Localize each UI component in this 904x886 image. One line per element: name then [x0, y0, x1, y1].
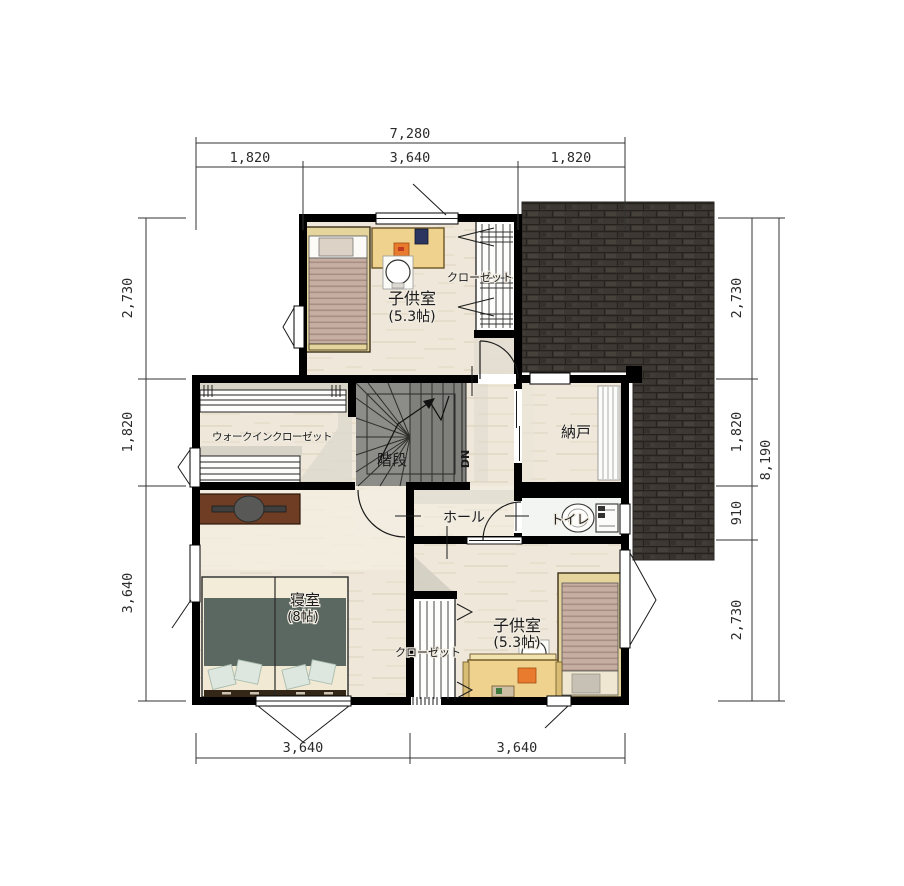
- window-icon: [620, 550, 630, 648]
- dresser-icon: [198, 494, 300, 524]
- label-bedroom: 寝室: [290, 591, 320, 609]
- window-icon: [620, 504, 630, 534]
- window-icon: [547, 696, 571, 706]
- floor-plan-page: 子供室 (5.3帖) クローゼット ウォークインクローゼット 階段 DN 納戸 …: [0, 0, 904, 886]
- label-walk-in-closet: ウォークインクローゼット: [212, 431, 332, 443]
- window-icon: [294, 306, 304, 348]
- door-icon: [478, 374, 516, 384]
- dim-left-seg-2: 1,820: [120, 412, 136, 453]
- window-icon: [530, 373, 570, 384]
- label-child-room-bottom: 子供室: [493, 616, 541, 635]
- dim-right-seg-4: 2,730: [729, 600, 745, 641]
- label-stairs: 階段: [377, 451, 407, 469]
- closet-rack-top-icon: [198, 383, 348, 412]
- bed-icon-child-bottom: [558, 573, 622, 697]
- bed-icon-bedroom: [202, 577, 348, 697]
- window-icon: [190, 545, 200, 602]
- dim-left-seg-3: 3,640: [120, 573, 136, 614]
- dim-right-seg-1: 2,730: [729, 278, 745, 319]
- label-child-room-top: 子供室: [388, 289, 436, 308]
- door-icon: [514, 389, 522, 463]
- dim-top-seg-3: 1,820: [551, 150, 592, 166]
- dim-top-total: 7,280: [390, 126, 431, 142]
- label-child-room-bottom-size: (5.3帖): [493, 635, 540, 651]
- label-closet-bottom: クローゼット: [395, 646, 461, 659]
- dim-left-seg-1: 2,730: [120, 278, 136, 319]
- stairs-unit: [356, 383, 466, 486]
- label-hall: ホール: [443, 510, 485, 526]
- dim-top-seg-2: 3,640: [390, 150, 431, 166]
- label-closet-top: クローゼット: [447, 271, 513, 284]
- label-bedroom-size: (8帖): [287, 610, 318, 625]
- window-icon: [190, 448, 200, 487]
- label-child-room-top-size: (5.3帖): [388, 309, 435, 325]
- dim-bottom-seg-2: 3,640: [497, 740, 538, 756]
- label-storage: 納戸: [561, 423, 591, 441]
- bed-icon-child-top: [306, 227, 370, 352]
- dim-top-seg-1: 1,820: [230, 150, 271, 166]
- window-icon: [598, 386, 620, 480]
- closet-rack-bottom-icon: [196, 446, 302, 484]
- dim-right-seg-3: 910: [729, 501, 745, 525]
- dim-right-seg-2: 1,820: [729, 412, 745, 453]
- dim-right-total: 8,190: [758, 440, 774, 481]
- floor-plan-canvas: 子供室 (5.3帖) クローゼット ウォークインクローゼット 階段 DN 納戸 …: [0, 0, 904, 886]
- label-toilet: トイレ: [550, 513, 589, 528]
- dim-bottom-seg-1: 3,640: [283, 740, 324, 756]
- door-icon: [514, 501, 522, 533]
- label-stairs-dn: DN: [459, 450, 472, 468]
